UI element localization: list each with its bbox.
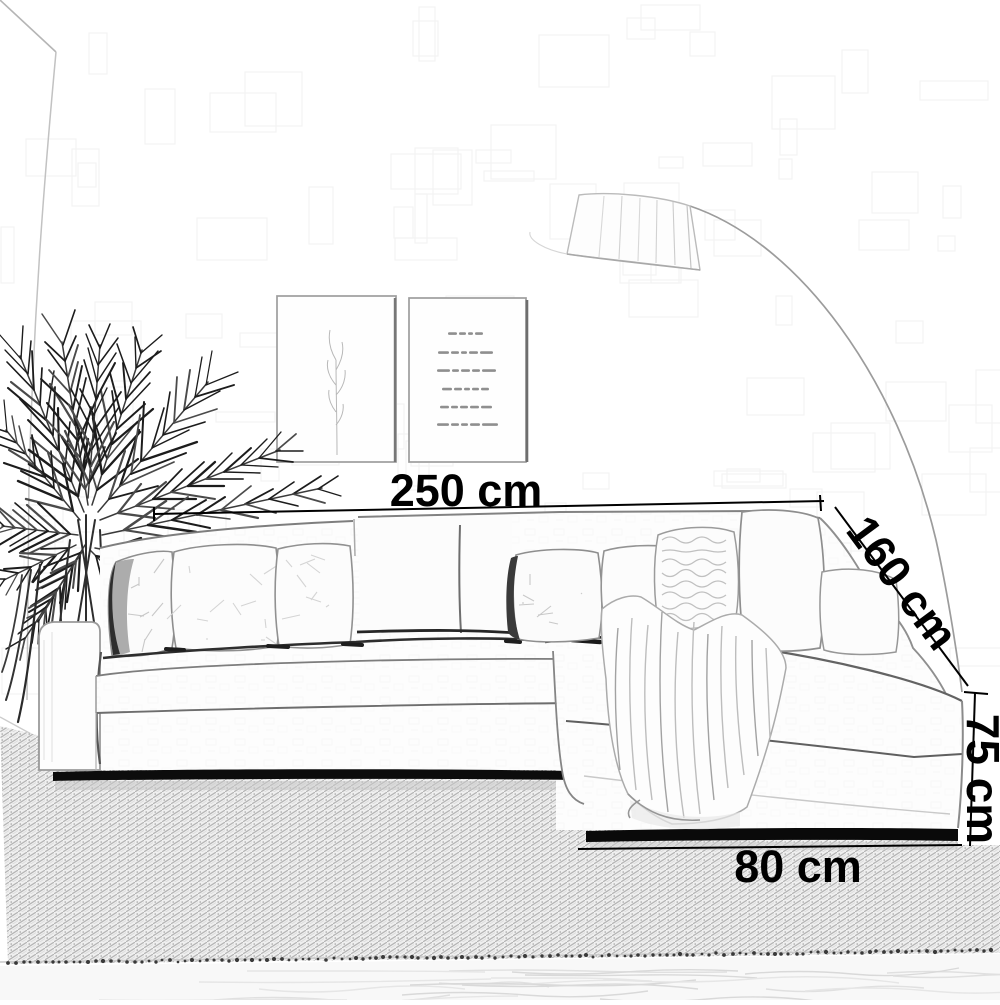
svg-text:75 cm: 75 cm: [957, 714, 1000, 844]
svg-text:250 cm: 250 cm: [390, 465, 543, 516]
svg-text:80 cm: 80 cm: [734, 841, 862, 892]
